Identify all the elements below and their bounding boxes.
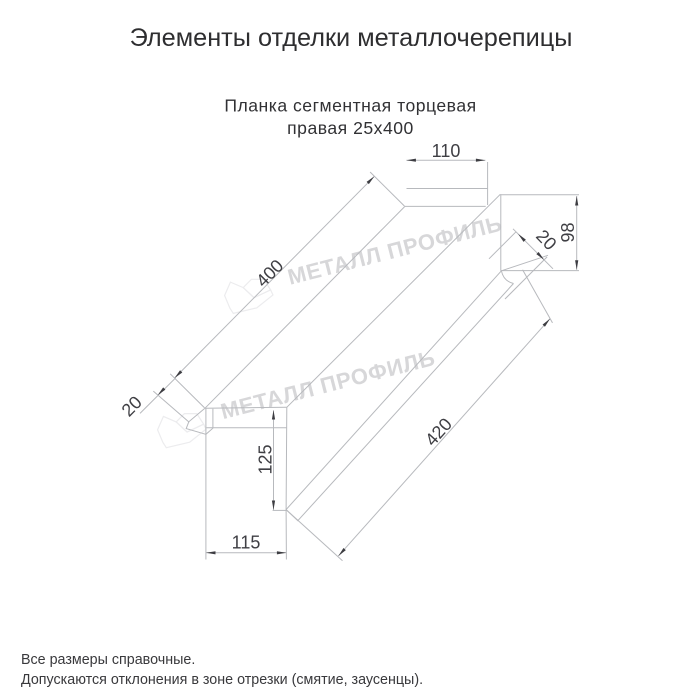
svg-text:Все размеры справочные.: Все размеры справочные. <box>21 652 195 668</box>
svg-text:125: 125 <box>256 444 276 474</box>
svg-text:110: 110 <box>432 141 461 161</box>
svg-text:Допускаются отклонения в зоне: Допускаются отклонения в зоне отрезки (с… <box>21 672 423 688</box>
svg-text:правая 25х400: правая 25х400 <box>287 118 414 138</box>
svg-text:Планка сегментная торцевая: Планка сегментная торцевая <box>224 96 476 116</box>
svg-text:115: 115 <box>232 533 261 553</box>
svg-text:Элементы отделки металлочерепи: Элементы отделки металлочерепицы <box>130 24 573 52</box>
